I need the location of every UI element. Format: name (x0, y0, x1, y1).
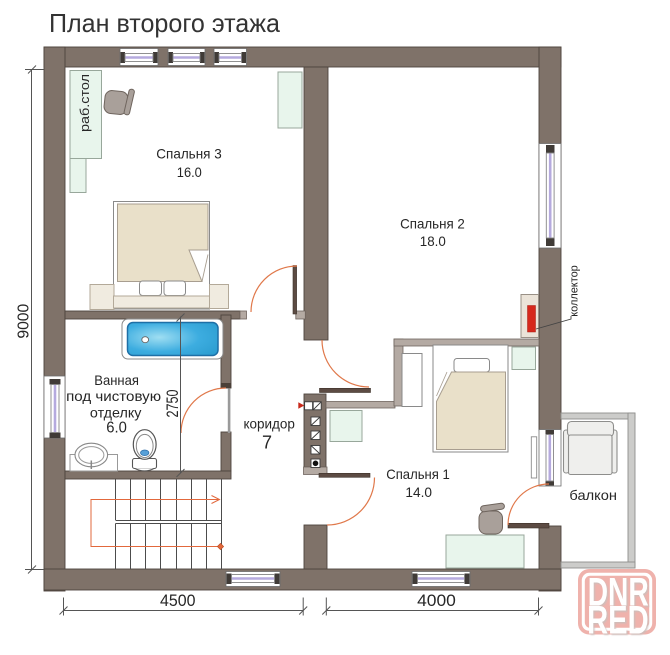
svg-text:16.0: 16.0 (177, 164, 202, 180)
svg-text:Спальня 2: Спальня 2 (400, 215, 465, 231)
svg-text:коллектор: коллектор (569, 265, 581, 317)
svg-text:9000: 9000 (16, 303, 33, 338)
svg-text:План второго этажа: План второго этажа (49, 8, 281, 38)
svg-text:4000: 4000 (417, 592, 456, 610)
svg-text:6.0: 6.0 (106, 419, 127, 436)
svg-text:4500: 4500 (160, 592, 196, 610)
svg-text:раб.стол: раб.стол (78, 74, 92, 132)
svg-text:Спальня 1: Спальня 1 (386, 466, 450, 482)
svg-text:коридор: коридор (243, 416, 295, 432)
svg-text:Спальня 3: Спальня 3 (156, 146, 222, 162)
svg-text:RED: RED (587, 599, 649, 643)
svg-text:7: 7 (262, 433, 272, 453)
svg-text:отделку: отделку (90, 405, 142, 421)
svg-text:Ванная: Ванная (94, 372, 139, 388)
svg-text:под чистовую: под чистовую (66, 388, 161, 404)
svg-text:14.0: 14.0 (405, 484, 432, 500)
svg-text:2750: 2750 (164, 390, 182, 418)
svg-text:18.0: 18.0 (420, 233, 446, 249)
svg-text:балкон: балкон (569, 487, 617, 503)
